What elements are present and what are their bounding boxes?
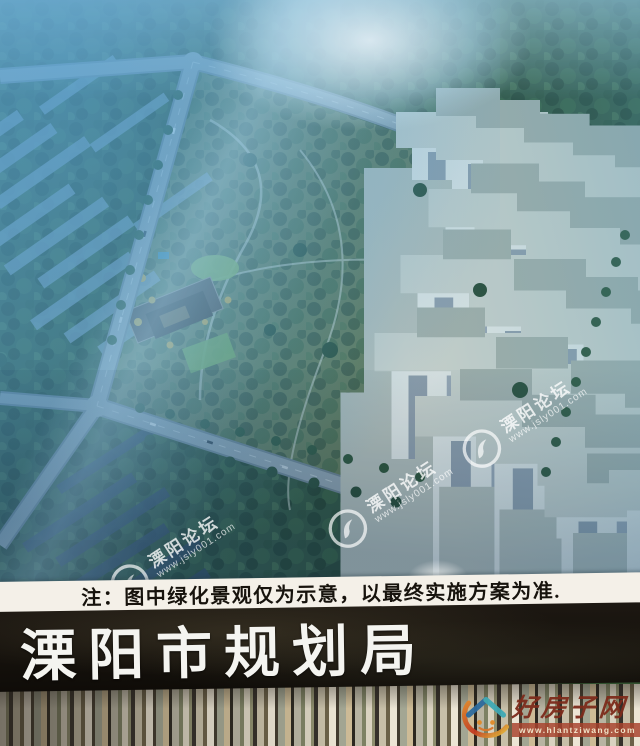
photo-of-planning-board: 溧阳论坛 www.jsly001.com 溧阳论坛 www.jsly001.co… [0,0,640,746]
hfz-brand-url: www.hlantziwang.com [512,723,640,737]
agency-banner: 溧阳市规划局 [0,602,640,692]
hfz-brand-name: 好房子网 [511,696,629,721]
hfz-brand-logo: 好房子网 www.hlantziwang.com [460,688,638,744]
masterplan-aerial-rendering [0,0,640,600]
agency-title: 溧阳市规划局 [19,605,428,692]
house-icon [460,691,512,741]
